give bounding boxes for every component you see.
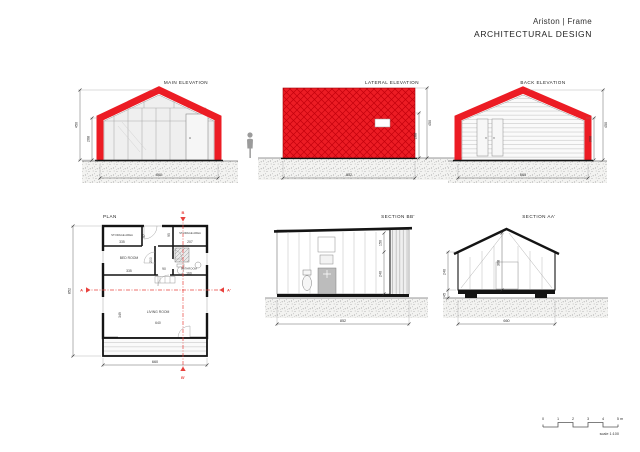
- ground-hatch: [443, 298, 608, 318]
- svg-text:660: 660: [152, 360, 158, 364]
- svg-text:A: A: [80, 288, 83, 293]
- project-title: Ariston | Frame: [474, 16, 592, 28]
- storage-right-label: STORAGE AREA: [179, 231, 201, 235]
- svg-text:B': B': [181, 375, 185, 380]
- house-side: [281, 88, 417, 158]
- svg-text:45: 45: [443, 293, 447, 297]
- drawing-sheet: Ariston | Frame ARCHITECTURAL DESIGN MAI…: [0, 0, 640, 452]
- shower: [175, 248, 189, 262]
- section-structure: [454, 229, 559, 298]
- section-bb-title: SECTION BB': [381, 214, 415, 219]
- section-aa-view: SECTION AA' 368: [438, 208, 613, 338]
- dim-overall-width: 660: [102, 358, 209, 367]
- title-block: Ariston | Frame ARCHITECTURAL DESIGN: [474, 16, 592, 40]
- bedroom-label: BED ROOM: [120, 256, 139, 260]
- svg-text:2: 2: [572, 417, 574, 421]
- svg-text:640: 640: [155, 321, 161, 325]
- svg-text:349: 349: [118, 312, 122, 318]
- svg-text:3: 3: [587, 417, 589, 421]
- door-handle: [189, 137, 191, 139]
- svg-text:B: B: [182, 210, 185, 215]
- project-subtitle: ARCHITECTURAL DESIGN: [474, 28, 592, 40]
- svg-text:268: 268: [87, 136, 91, 142]
- deck: [103, 338, 207, 356]
- dim-wall-height: 268: [87, 117, 99, 162]
- svg-text:660: 660: [156, 173, 162, 177]
- back-elevation-view: BACK ELEVATION 268: [440, 68, 615, 194]
- toilet: [303, 276, 312, 291]
- svg-text:450: 450: [75, 122, 79, 128]
- window-frame: [318, 237, 335, 252]
- svg-text:240: 240: [379, 271, 383, 277]
- svg-text:852: 852: [340, 319, 346, 323]
- ground-hatch: [265, 298, 428, 318]
- svg-text:207: 207: [187, 240, 193, 244]
- svg-text:450: 450: [604, 122, 608, 128]
- svg-text:160: 160: [186, 272, 192, 276]
- front-door: [186, 114, 208, 160]
- svg-text:368: 368: [497, 260, 501, 266]
- section-structure: [274, 228, 412, 297]
- storage-left-label: STORAGE AREA: [111, 233, 133, 237]
- mirror: [320, 255, 333, 264]
- svg-text:450: 450: [428, 120, 432, 126]
- scale-bar-steps: [543, 423, 618, 428]
- floor-slab: [458, 290, 555, 294]
- svg-text:95: 95: [167, 233, 171, 237]
- svg-text:0: 0: [542, 417, 544, 421]
- svg-text:852: 852: [346, 173, 352, 177]
- foundation-foot-right: [535, 294, 547, 298]
- house-back: [453, 90, 593, 161]
- living-room-label: LIVING ROOM: [147, 310, 170, 314]
- svg-text:97: 97: [142, 234, 146, 238]
- svg-text:288: 288: [414, 133, 418, 139]
- storage-wall-planks: [391, 230, 409, 294]
- floor-slab: [277, 294, 409, 297]
- side-window: [375, 119, 390, 127]
- foundation-foot-left: [465, 294, 477, 298]
- svg-text:335: 335: [126, 269, 132, 273]
- main-elevation-view: MAIN ELEVATION 450: [70, 68, 250, 194]
- svg-text:1: 1: [557, 417, 559, 421]
- svg-text:660: 660: [503, 319, 509, 323]
- svg-text:200: 200: [149, 257, 153, 263]
- scale-bar: 0 1 2 3 4 5 m scale 1:100: [525, 412, 635, 446]
- plan-view: PLAN: [58, 203, 253, 395]
- svg-text:335: 335: [119, 240, 125, 244]
- svg-text:240: 240: [443, 269, 447, 275]
- scale-tick-labels: 0 1 2 3 4 5 m: [542, 417, 623, 421]
- lateral-elevation-title: LATERAL ELEVATION: [365, 80, 419, 85]
- svg-text:5 m: 5 m: [617, 417, 623, 421]
- svg-text:660: 660: [520, 173, 526, 177]
- plan-title: PLAN: [103, 214, 117, 219]
- scale-label: scale 1:100: [600, 432, 619, 436]
- dim-overall-depth: 852: [68, 225, 102, 358]
- main-elevation-title: MAIN ELEVATION: [164, 80, 208, 85]
- svg-text:268: 268: [589, 136, 593, 142]
- svg-text:A': A': [227, 288, 231, 293]
- bathroom-label: BATHROOM: [181, 267, 198, 271]
- ground-hatch: [448, 161, 607, 183]
- section-bb-view: SECTION BB': [262, 208, 434, 338]
- house-front: [95, 90, 223, 161]
- hall-dim: 90: [162, 267, 166, 271]
- section-aa-title: SECTION AA': [522, 214, 555, 219]
- dim-overall-height: 450: [415, 87, 432, 160]
- toilet-tank: [303, 270, 311, 275]
- ground-hatch: [82, 161, 238, 183]
- svg-text:852: 852: [68, 288, 72, 294]
- svg-text:4: 4: [602, 417, 604, 421]
- back-elevation-title: BACK ELEVATION: [520, 80, 565, 85]
- svg-text:150: 150: [379, 240, 383, 246]
